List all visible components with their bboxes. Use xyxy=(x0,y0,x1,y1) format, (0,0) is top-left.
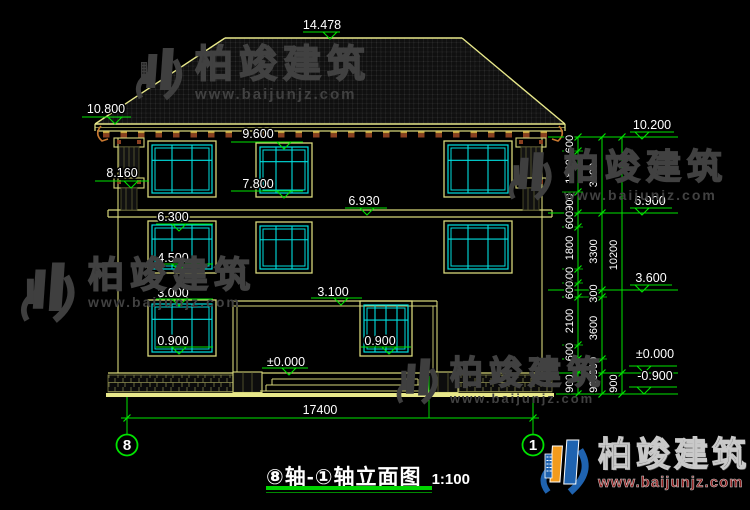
svg-text:600: 600 xyxy=(564,343,576,361)
title-underline xyxy=(266,486,432,490)
svg-text:±0.000: ±0.000 xyxy=(636,347,674,361)
svg-text:10.200: 10.200 xyxy=(633,118,671,132)
svg-text:900: 900 xyxy=(608,374,620,392)
svg-text:9.600: 9.600 xyxy=(242,127,273,141)
elevation-drawing: 6001800900600180060060021006009003300330… xyxy=(0,0,750,510)
svg-text:600: 600 xyxy=(564,135,576,153)
svg-text:8: 8 xyxy=(123,437,131,454)
drawing-scale: 1:100 xyxy=(432,471,470,488)
svg-text:900: 900 xyxy=(564,374,576,392)
svg-text:900: 900 xyxy=(588,374,600,392)
svg-text:8.160: 8.160 xyxy=(106,166,137,180)
svg-text:±0.000: ±0.000 xyxy=(267,355,305,369)
svg-text:4.500: 4.500 xyxy=(157,251,188,265)
title-underline-thin xyxy=(266,492,432,493)
brand-url: www.baijunjz.com xyxy=(598,474,750,491)
svg-text:900: 900 xyxy=(564,193,576,211)
svg-text:3300: 3300 xyxy=(588,163,600,187)
svg-text:300: 300 xyxy=(588,357,600,375)
svg-text:1800: 1800 xyxy=(564,159,576,183)
brand-name: 柏竣建筑 xyxy=(598,438,750,472)
svg-text:7.800: 7.800 xyxy=(242,177,273,191)
svg-text:6.900: 6.900 xyxy=(634,194,665,208)
svg-text:6.930: 6.930 xyxy=(348,194,379,208)
svg-text:300: 300 xyxy=(588,284,600,302)
svg-text:14.478: 14.478 xyxy=(303,18,341,32)
brand-logo-icon xyxy=(540,438,592,500)
cad-canvas: 6001800900600180060060021006009003300330… xyxy=(0,0,750,510)
svg-text:-0.900: -0.900 xyxy=(637,369,672,383)
svg-text:3.100: 3.100 xyxy=(317,285,348,299)
brand-logo: 柏竣建筑 www.baijunjz.com xyxy=(540,438,750,500)
svg-text:3.000: 3.000 xyxy=(157,286,188,300)
svg-text:3600: 3600 xyxy=(588,316,600,340)
svg-text:3300: 3300 xyxy=(588,239,600,263)
svg-text:0.900: 0.900 xyxy=(364,334,395,348)
svg-text:10200: 10200 xyxy=(608,240,620,271)
svg-text:600: 600 xyxy=(564,211,576,229)
svg-text:2100: 2100 xyxy=(564,309,576,333)
svg-text:10.800: 10.800 xyxy=(87,102,125,116)
svg-text:0.900: 0.900 xyxy=(157,334,188,348)
svg-text:1: 1 xyxy=(529,437,537,454)
svg-text:3.600: 3.600 xyxy=(635,271,666,285)
svg-text:600: 600 xyxy=(564,281,576,299)
svg-text:1800: 1800 xyxy=(564,236,576,260)
svg-text:17400: 17400 xyxy=(303,403,338,417)
svg-text:6.300: 6.300 xyxy=(157,210,188,224)
